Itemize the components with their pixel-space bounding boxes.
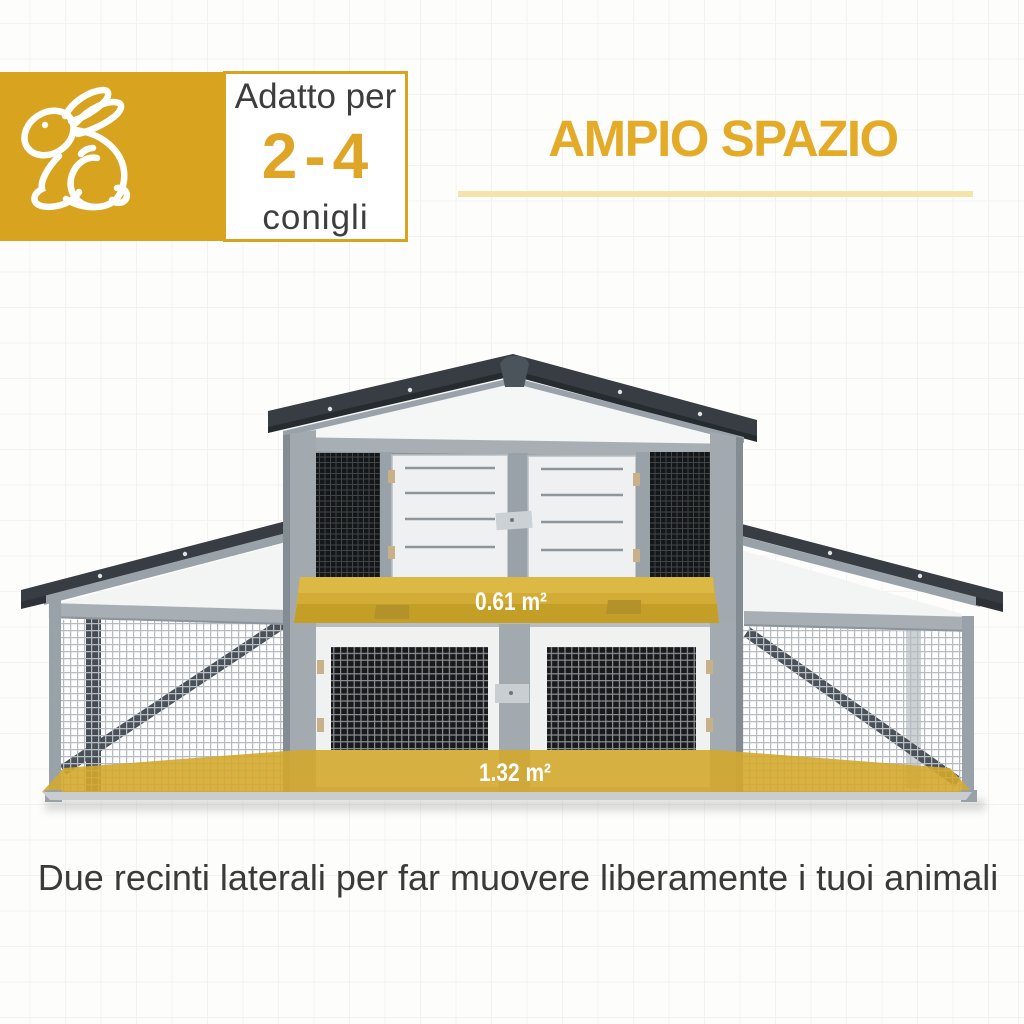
svg-text:1.32 m²: 1.32 m² (479, 759, 551, 787)
svg-text:0.61 m²: 0.61 m² (475, 588, 547, 616)
